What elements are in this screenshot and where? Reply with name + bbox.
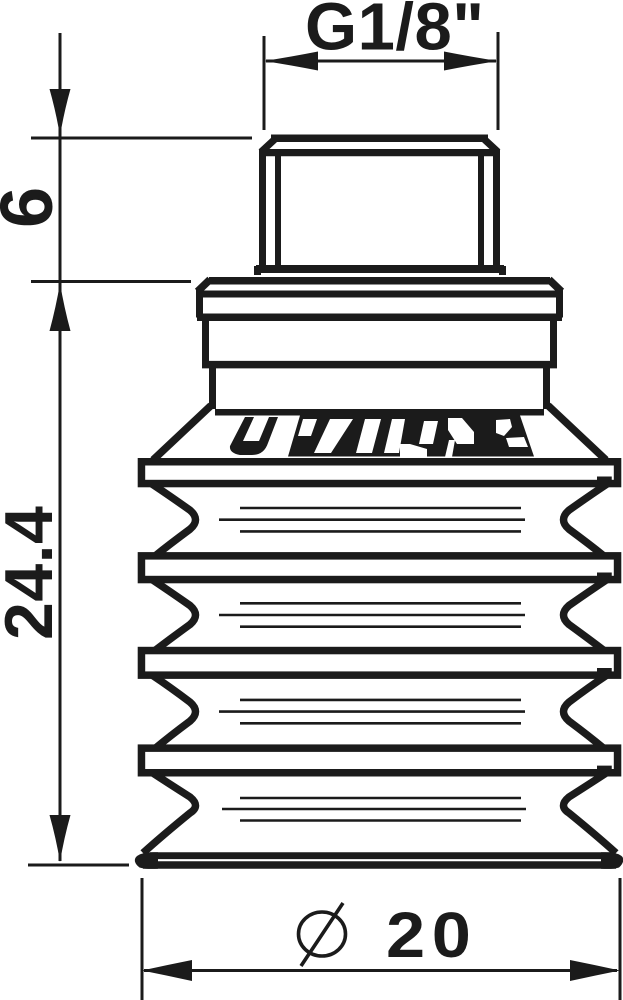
- svg-text:6: 6: [0, 187, 68, 228]
- svg-text:20: 20: [386, 900, 477, 971]
- svg-text:24.4: 24.4: [0, 506, 67, 640]
